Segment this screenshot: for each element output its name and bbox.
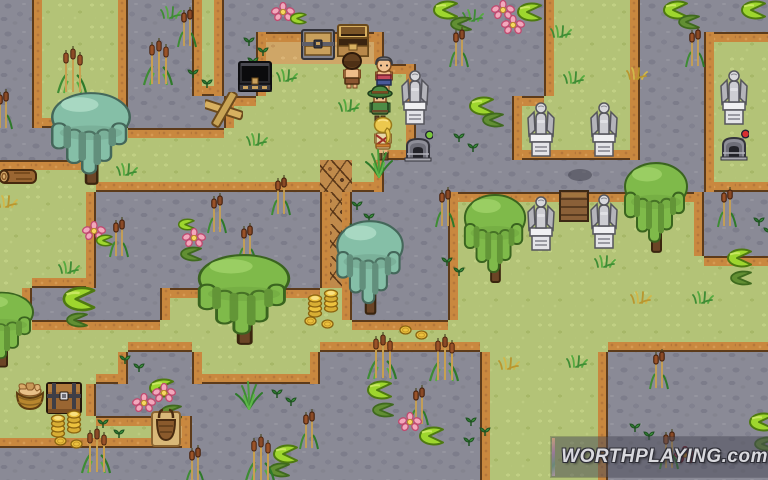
shore-edge [630, 32, 640, 64]
tile-grass [192, 160, 224, 192]
shore-edge [630, 0, 640, 32]
shore-edge [694, 224, 704, 256]
coin[interactable] [415, 330, 428, 340]
tuft-green [594, 254, 616, 268]
lilypad-dark [724, 270, 754, 286]
tile-grass [544, 288, 576, 320]
cattail-cluster [142, 36, 174, 86]
tile-grass [736, 160, 768, 192]
cattail-cluster [428, 332, 460, 382]
shore-edge [160, 182, 192, 192]
tuft-green [550, 24, 572, 38]
sprout [270, 388, 284, 399]
tile-grass [128, 320, 160, 352]
machine-green[interactable] [403, 130, 433, 162]
tile-grass [96, 32, 128, 64]
tile-grass [480, 320, 512, 352]
cattail-pair [270, 174, 292, 216]
shore-edge [118, 0, 128, 32]
cattail-pair [298, 408, 320, 450]
basket-bread[interactable] [13, 381, 47, 415]
tile-grass [576, 320, 608, 352]
tile-grass [96, 0, 128, 32]
tuft-green [338, 98, 360, 112]
shore-edge [416, 320, 448, 330]
sign-cross[interactable] [205, 92, 243, 128]
tile-grass [736, 320, 768, 352]
tile-grass [640, 256, 672, 288]
statue-angel[interactable] [589, 184, 619, 250]
statue-angel[interactable] [526, 92, 556, 158]
tile-grass [672, 320, 704, 352]
cattail-pair [648, 348, 670, 390]
tile-grass [512, 288, 544, 320]
lilypad [736, 0, 768, 20]
shore-edge [160, 342, 192, 352]
sprout [350, 200, 364, 211]
shore-edge [86, 256, 96, 288]
log [0, 165, 40, 189]
tile-grass [512, 320, 544, 352]
sprout [242, 36, 256, 47]
shore-edge [672, 342, 704, 352]
shore-edge [118, 32, 128, 64]
shore-edge [288, 182, 320, 192]
tile-twig [320, 160, 352, 192]
willow-green [192, 252, 296, 348]
statue-angel[interactable] [526, 186, 556, 252]
tile-grass [160, 288, 192, 320]
cattail-pair [684, 26, 706, 68]
tile-grass [576, 288, 608, 320]
tile-grass [480, 288, 512, 320]
shore-edge [512, 96, 522, 128]
tuft-yellow [498, 356, 520, 370]
cattail-pair [716, 186, 738, 228]
shore-edge [704, 342, 736, 352]
tile-grass [608, 32, 640, 64]
shore-edge [192, 182, 224, 192]
shore-edge [598, 384, 608, 416]
coin-stack[interactable] [307, 292, 323, 318]
tile-grass [32, 192, 64, 224]
tile-grass [672, 256, 704, 288]
tuft-yellow [626, 66, 648, 80]
shore-edge [480, 352, 490, 384]
tile-grass [320, 128, 352, 160]
sprout [200, 78, 214, 89]
shore-edge [310, 352, 320, 384]
shore-edge [512, 128, 522, 160]
tile-grass [512, 416, 544, 448]
cattail-pair [184, 444, 206, 480]
shore-edge [352, 320, 384, 330]
cattail-pair [0, 88, 14, 130]
shore-edge [736, 342, 768, 352]
tuft-yellow [0, 194, 18, 208]
sprout [628, 422, 642, 433]
tuft-green [58, 260, 80, 274]
coin[interactable] [321, 319, 334, 329]
tile-grass [544, 384, 576, 416]
shore-edge [448, 224, 458, 256]
tile-grass [32, 0, 64, 32]
tile-grass [704, 320, 736, 352]
shore-edge [32, 32, 42, 64]
willow-green [620, 160, 692, 256]
cattail-pair [206, 192, 228, 234]
willow-green [0, 290, 38, 370]
statue-angel[interactable] [400, 60, 430, 126]
statue-angel[interactable] [719, 60, 749, 126]
tile-grass [192, 352, 224, 384]
shore-edge [86, 192, 96, 224]
tile-grass [288, 352, 320, 384]
reed-tuft [234, 380, 264, 410]
shore-edge [86, 384, 96, 416]
tile-grass [448, 288, 480, 320]
cattail-pair [108, 216, 130, 258]
tile-grass [288, 128, 320, 160]
lilypad-dark [60, 312, 90, 328]
coin[interactable] [54, 436, 67, 446]
tile-grass [160, 160, 192, 192]
sprout [466, 142, 480, 153]
cattail-pair [448, 26, 470, 68]
coin[interactable] [399, 325, 412, 335]
cattail-pair [176, 6, 198, 48]
basket-hamper[interactable] [151, 406, 181, 450]
coin[interactable] [304, 316, 317, 326]
shore-edge [160, 128, 192, 138]
lilypad [56, 286, 98, 312]
sprout [132, 362, 146, 373]
shore-edge [704, 128, 714, 160]
cattail-pair [434, 186, 456, 228]
sprout [452, 132, 466, 143]
tuft-green [563, 70, 585, 84]
shore-edge [598, 352, 608, 384]
shore-edge [32, 64, 42, 96]
tile-grass [64, 192, 96, 224]
willow-green [460, 192, 530, 286]
tile-grass [736, 288, 768, 320]
tile-grass [64, 0, 96, 32]
tile-grass [576, 384, 608, 416]
watermark-logo-icon [552, 438, 555, 476]
tile-grass [576, 0, 608, 32]
tile-grass [544, 320, 576, 352]
shore-edge [608, 342, 640, 352]
tile-grass [480, 384, 512, 416]
flower-pink [182, 228, 206, 248]
tile-grass [160, 128, 192, 160]
shore-edge [32, 96, 42, 128]
tile-grass [288, 160, 320, 192]
chest-gray[interactable] [300, 27, 336, 62]
tile-grass [608, 320, 640, 352]
lilypad-dark [476, 112, 506, 128]
sprout [762, 226, 768, 237]
willow-teal [46, 90, 136, 188]
shore-edge [480, 384, 490, 416]
char-brown[interactable] [339, 52, 365, 90]
tuft-yellow [630, 290, 652, 304]
watermark: WORTHPLAYING.com [551, 437, 768, 477]
shore-edge [704, 64, 714, 96]
shore-edge [320, 224, 330, 256]
tile-grass [576, 32, 608, 64]
sprout [478, 426, 492, 437]
shore-edge [128, 342, 160, 352]
tile-grass [192, 128, 224, 160]
door-hatch[interactable] [559, 189, 589, 223]
shore-edge [192, 128, 224, 138]
tuft-green [566, 354, 588, 368]
tile-grass [0, 224, 32, 256]
sprout [186, 68, 200, 79]
shore-edge [128, 320, 160, 330]
tile-grass [480, 448, 512, 480]
shore-edge [320, 256, 330, 288]
shore-edge [224, 182, 256, 192]
shore-edge [694, 192, 704, 224]
tile-grass [160, 320, 192, 352]
shore-edge [736, 32, 768, 42]
cattail-cluster [80, 424, 112, 474]
sprout [462, 436, 476, 447]
shore-edge [160, 288, 170, 320]
shore-edge [214, 32, 224, 64]
tile-grass [256, 96, 288, 128]
sprout [284, 396, 298, 407]
lilypad-small [288, 12, 308, 25]
shore-edge [320, 342, 352, 352]
tile-grass [512, 384, 544, 416]
tile-grass [96, 320, 128, 352]
coin-stack[interactable] [50, 412, 66, 438]
shore-edge [480, 448, 490, 480]
tile-grass [544, 256, 576, 288]
shore-edge [32, 0, 42, 32]
shore-edge [0, 438, 32, 448]
sprout [464, 416, 478, 427]
shore-edge [96, 320, 128, 330]
shore-edge [448, 288, 458, 320]
tile-grass [608, 0, 640, 32]
shadow-blob [566, 167, 594, 183]
lilypad [722, 248, 754, 268]
tuft-green [246, 132, 268, 146]
lilypad [414, 426, 446, 446]
reed-tuft [364, 148, 394, 178]
cattail-cluster [244, 432, 276, 480]
tile-grass [0, 416, 32, 448]
sprout [118, 354, 132, 365]
cattail-cluster [56, 44, 88, 94]
cattail-cluster [366, 330, 398, 380]
shore-edge [704, 160, 714, 192]
chest-dark[interactable] [237, 58, 273, 95]
shore-edge [214, 0, 224, 32]
tile-grass [0, 256, 32, 288]
sprout [112, 428, 126, 439]
tuft-green [692, 290, 714, 304]
statue-angel[interactable] [589, 92, 619, 158]
shore-edge [704, 96, 714, 128]
tuft-green [276, 68, 298, 82]
shore-edge [320, 192, 330, 224]
flower-pink [501, 15, 525, 35]
willow-teal [332, 218, 408, 318]
shore-edge [630, 96, 640, 128]
lilypad [744, 412, 768, 432]
lilypad [362, 380, 394, 400]
tile-grass [288, 96, 320, 128]
lilypad-dark [366, 402, 396, 418]
shore-edge [192, 352, 202, 384]
shore-edge [630, 128, 640, 160]
tile-grass [32, 224, 64, 256]
shore-edge [736, 182, 768, 192]
machine-red[interactable] [719, 129, 749, 161]
watermark-text: WORTHPLAYING.com [561, 446, 768, 468]
tile-grass [224, 160, 256, 192]
game-map[interactable]: WORTHPLAYING.com [0, 0, 768, 480]
tile-grass [512, 448, 544, 480]
